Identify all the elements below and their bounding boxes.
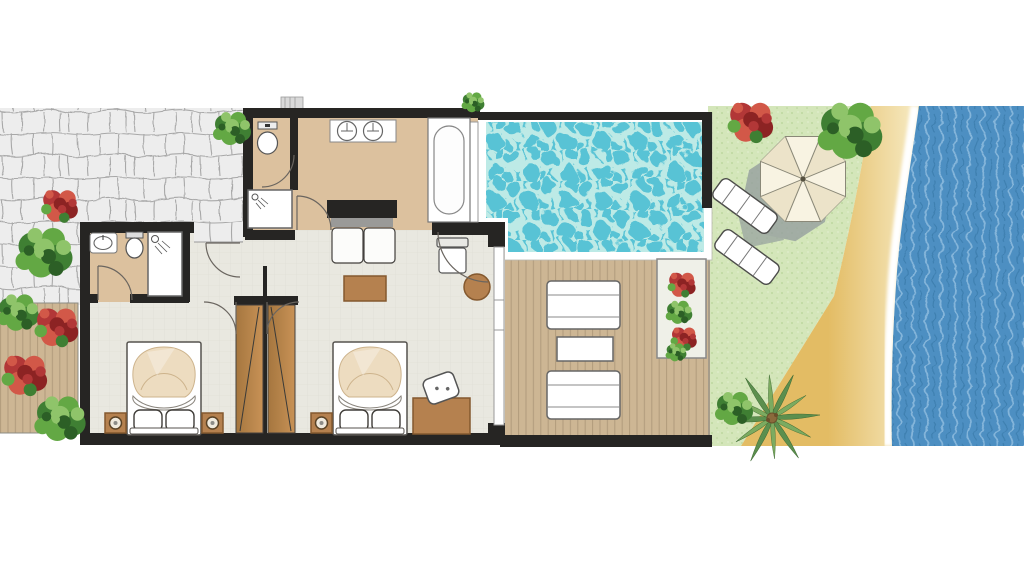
glass-door-to-pool	[470, 122, 478, 222]
private-pool	[476, 114, 714, 262]
floor-plan	[0, 0, 1024, 576]
nightstand	[202, 413, 223, 433]
entry-step	[281, 97, 303, 109]
deck-sun-lounger	[547, 281, 620, 329]
wc-toilet	[258, 122, 278, 154]
deck-sun-lounger	[547, 371, 620, 419]
glass-door-to-deck	[494, 247, 504, 425]
double-bed-left	[127, 342, 201, 435]
ensuite-toilet	[126, 232, 143, 258]
flower-planter	[657, 259, 706, 361]
wardrobe-right	[268, 305, 295, 433]
desk	[413, 398, 470, 434]
nightstand	[311, 413, 332, 433]
deck-side-table	[557, 337, 613, 361]
double-washbasin	[330, 120, 396, 142]
sofa	[327, 200, 397, 263]
coffee-table	[344, 276, 386, 301]
wardrobe-left	[236, 305, 263, 433]
floor-plan-page	[0, 0, 1024, 576]
ensuite-washbasin	[90, 233, 117, 253]
ensuite-shower	[148, 232, 182, 296]
entry-alcove	[194, 222, 243, 242]
top-shower	[248, 190, 292, 228]
bathtub	[428, 118, 470, 222]
nightstand	[105, 413, 126, 433]
double-bed-right	[333, 342, 407, 435]
pool-caustics	[478, 114, 714, 262]
